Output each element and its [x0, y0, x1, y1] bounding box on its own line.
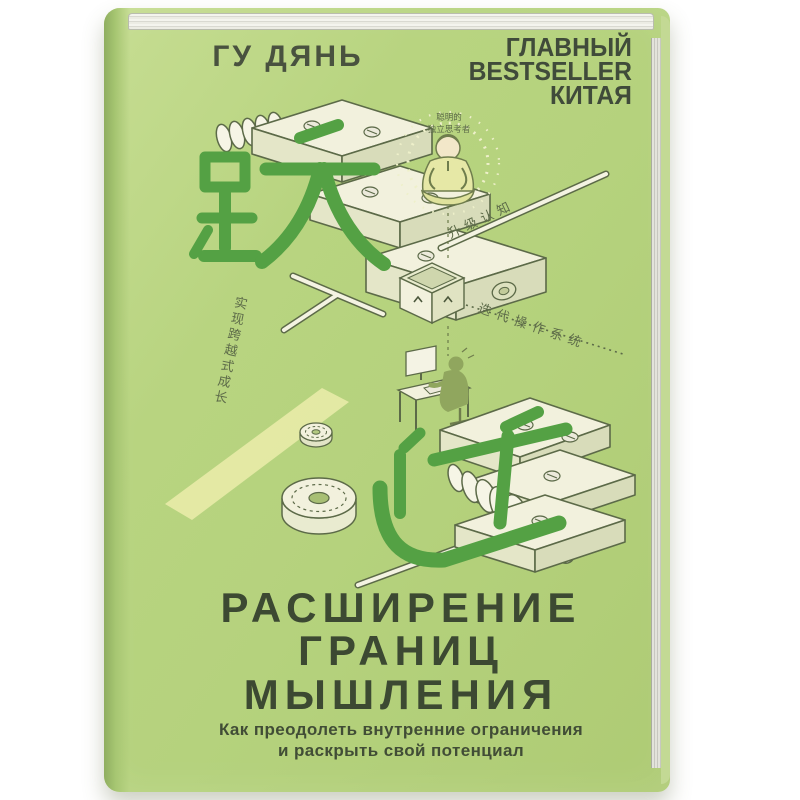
title-line-3: МЫШЛЕНИЯ: [118, 673, 684, 716]
thinker-label: 聪明的 独立思考者: [405, 112, 493, 137]
book-title: РАСШИРЕНИЕ ГРАНИЦ МЫШЛЕНИЯ: [118, 586, 684, 716]
bestseller-badge: ГЛАВНЫЙ BESTSELLER КИТАЯ: [469, 36, 632, 108]
disc-large: [282, 478, 356, 534]
clamp-press-bottom: [380, 398, 635, 572]
title-line-2: ГРАНИЦ: [118, 629, 684, 672]
desk-worker-scene: [398, 346, 474, 430]
product-photo-page: { "page": { "background": "#ffffff" }, "…: [0, 0, 800, 800]
title-line-1: РАСШИРЕНИЕ: [118, 586, 684, 629]
badge-line-3: КИТАЯ: [469, 84, 632, 108]
subtitle-line-2: и раскрыть свой потенциал: [118, 741, 684, 762]
disc-small: [300, 423, 332, 447]
book-subtitle: Как преодолеть внутренние ограничения и …: [118, 720, 684, 761]
author-name: ГУ ДЯНЬ: [183, 40, 393, 74]
subtitle-line-1: Как преодолеть внутренние ограничения: [118, 720, 684, 741]
